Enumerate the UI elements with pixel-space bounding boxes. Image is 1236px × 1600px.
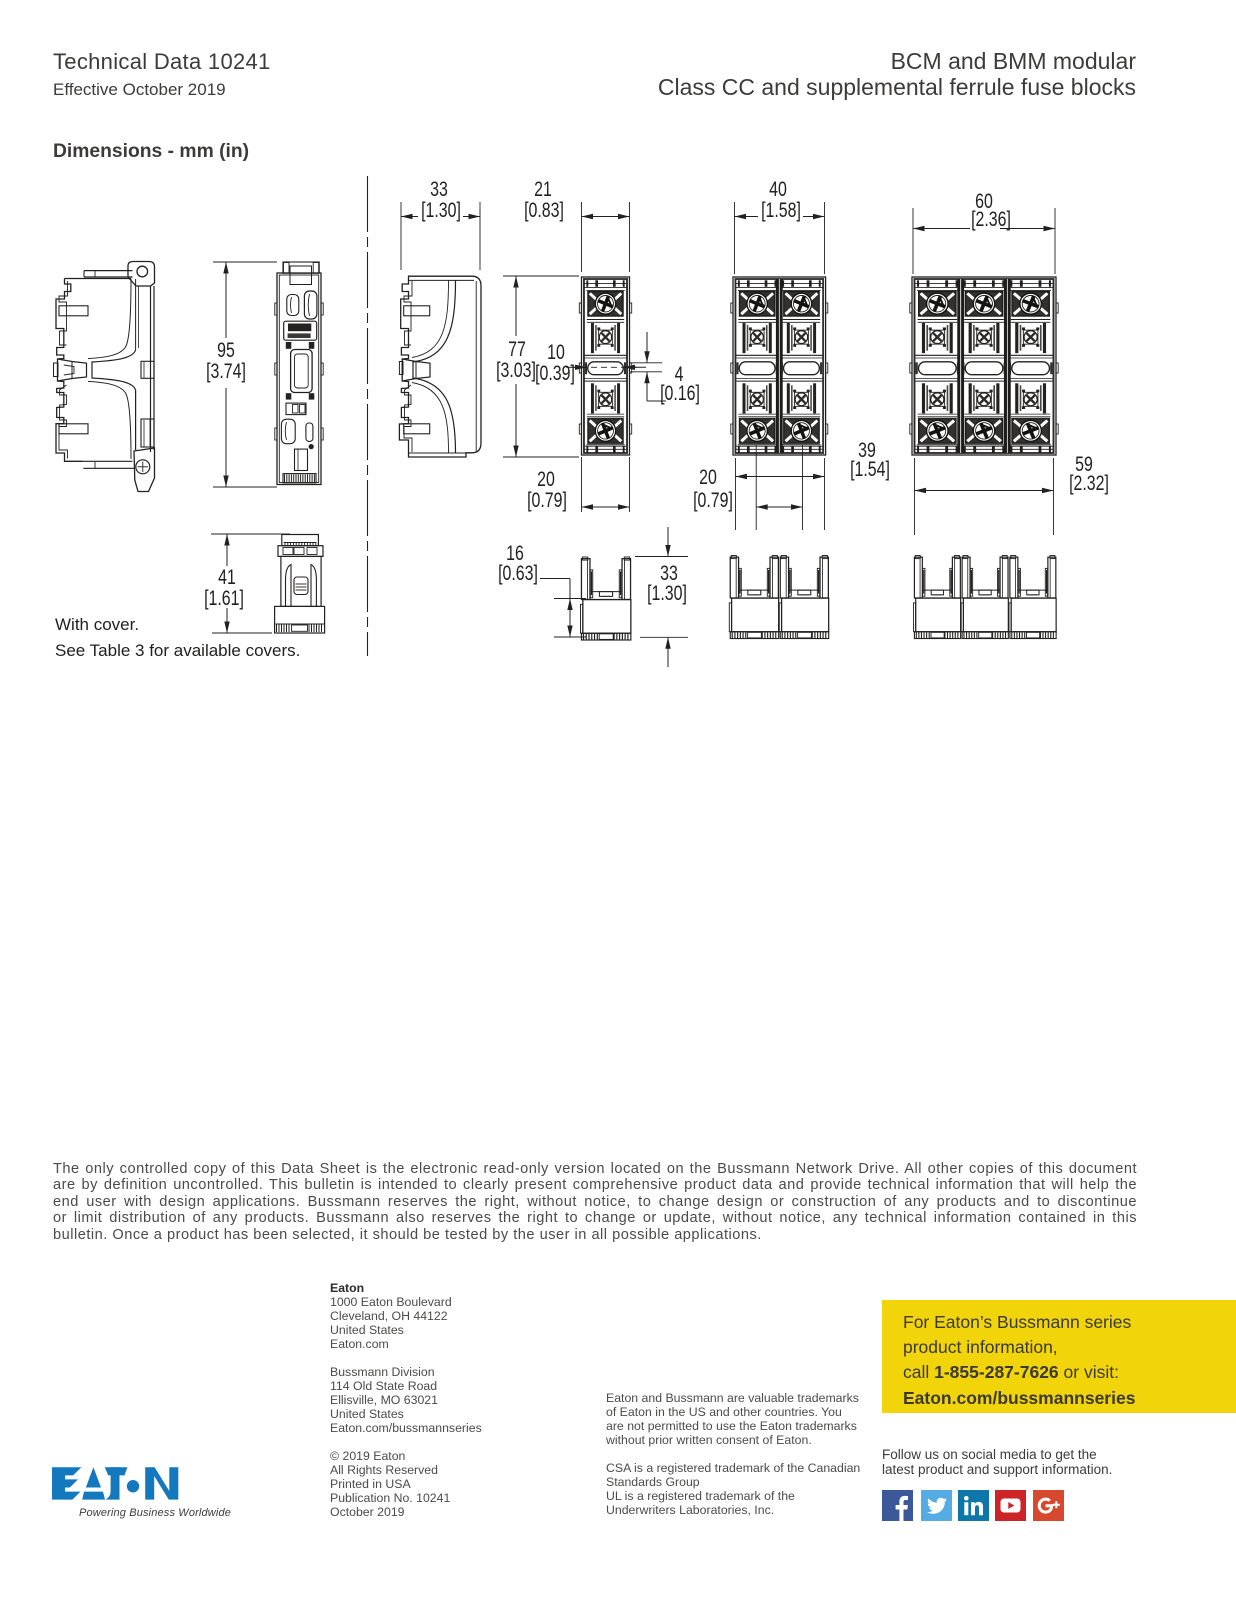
svg-text:[1.54]: [1.54] <box>850 457 890 481</box>
svg-text:[0.63]: [0.63] <box>498 561 538 585</box>
svg-text:[2.36]: [2.36] <box>971 207 1011 231</box>
svg-text:[1.58]: [1.58] <box>761 198 801 222</box>
svg-text:[1.30]: [1.30] <box>647 581 687 605</box>
svg-text:[1.30]: [1.30] <box>421 198 461 222</box>
svg-text:[2.32]: [2.32] <box>1069 471 1109 495</box>
svg-text:[0.83]: [0.83] <box>524 198 564 222</box>
svg-text:20: 20 <box>699 465 717 489</box>
svg-text:[0.39]: [0.39] <box>535 361 575 385</box>
svg-text:[0.16]: [0.16] <box>660 381 700 405</box>
svg-text:[3.74]: [3.74] <box>206 359 246 383</box>
svg-text:[3.03]: [3.03] <box>496 358 536 382</box>
svg-text:[0.79]: [0.79] <box>527 488 567 512</box>
svg-text:[0.79]: [0.79] <box>693 488 733 512</box>
svg-text:[1.61]: [1.61] <box>204 586 244 610</box>
